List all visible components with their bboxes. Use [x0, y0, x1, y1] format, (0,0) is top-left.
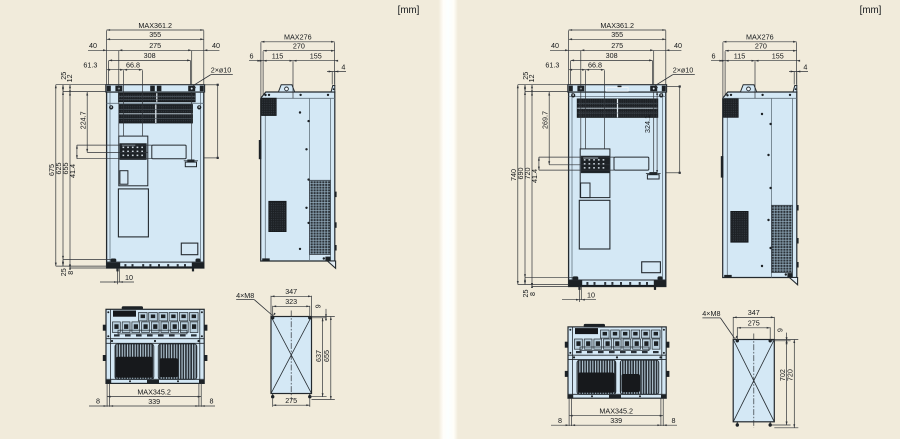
svg-text:MAX276: MAX276	[746, 33, 774, 42]
svg-text:61.3: 61.3	[83, 61, 97, 70]
svg-text:339: 339	[148, 397, 160, 406]
svg-text:8: 8	[528, 292, 537, 296]
svg-text:355: 355	[149, 30, 161, 39]
svg-text:720: 720	[786, 369, 795, 381]
svg-text:308: 308	[144, 51, 156, 60]
svg-text:270: 270	[293, 42, 305, 51]
svg-text:12: 12	[527, 74, 536, 82]
svg-text:[mm]: [mm]	[398, 5, 420, 16]
svg-text:2×ø10: 2×ø10	[211, 65, 232, 74]
svg-text:9: 9	[314, 304, 323, 308]
svg-text:9: 9	[776, 328, 785, 332]
svg-text:8: 8	[210, 397, 214, 406]
svg-text:324.1: 324.1	[643, 115, 652, 133]
svg-text:270: 270	[755, 42, 767, 51]
svg-text:4: 4	[803, 62, 807, 71]
svg-text:4: 4	[341, 62, 345, 71]
svg-text:MAX276: MAX276	[284, 33, 312, 42]
svg-text:8: 8	[96, 397, 100, 406]
svg-text:40: 40	[551, 41, 559, 50]
svg-text:115: 115	[272, 51, 283, 60]
svg-text:10: 10	[125, 273, 133, 282]
svg-text:12: 12	[65, 74, 74, 82]
svg-text:224.7: 224.7	[78, 111, 87, 129]
svg-text:115: 115	[734, 51, 745, 60]
svg-text:275: 275	[285, 396, 297, 405]
svg-text:347: 347	[285, 287, 297, 296]
svg-text:355: 355	[611, 30, 623, 39]
svg-text:155: 155	[772, 51, 784, 60]
svg-text:8: 8	[66, 271, 75, 275]
svg-text:MAX345.2: MAX345.2	[599, 407, 633, 416]
svg-text:269.7: 269.7	[540, 111, 549, 129]
svg-text:275: 275	[748, 319, 760, 328]
svg-text:4×M8: 4×M8	[702, 309, 720, 318]
svg-text:2×ø10: 2×ø10	[673, 65, 694, 74]
svg-text:61.3: 61.3	[545, 61, 559, 70]
svg-text:275: 275	[611, 41, 623, 50]
svg-text:MAX361.2: MAX361.2	[600, 21, 634, 30]
svg-text:308: 308	[606, 51, 618, 60]
svg-text:655: 655	[322, 350, 331, 362]
svg-text:41.4: 41.4	[530, 169, 539, 183]
svg-text:275: 275	[149, 41, 161, 50]
svg-text:40: 40	[212, 41, 220, 50]
svg-text:MAX345.2: MAX345.2	[137, 387, 171, 396]
svg-text:323: 323	[285, 297, 297, 306]
svg-text:6: 6	[712, 51, 716, 60]
svg-text:10: 10	[587, 291, 595, 300]
svg-text:66.8: 66.8	[588, 61, 602, 70]
svg-text:8: 8	[672, 416, 676, 425]
svg-text:339: 339	[610, 416, 622, 425]
svg-text:4×M8: 4×M8	[236, 291, 254, 300]
svg-text:8: 8	[558, 416, 562, 425]
svg-text:[mm]: [mm]	[860, 5, 882, 16]
svg-text:41.4: 41.4	[68, 164, 77, 178]
svg-text:347: 347	[748, 308, 760, 317]
svg-text:MAX361.2: MAX361.2	[138, 21, 172, 30]
svg-text:6: 6	[250, 51, 254, 60]
svg-text:155: 155	[310, 51, 322, 60]
svg-text:40: 40	[674, 41, 682, 50]
svg-text:40: 40	[89, 41, 97, 50]
svg-text:66.8: 66.8	[126, 61, 140, 70]
